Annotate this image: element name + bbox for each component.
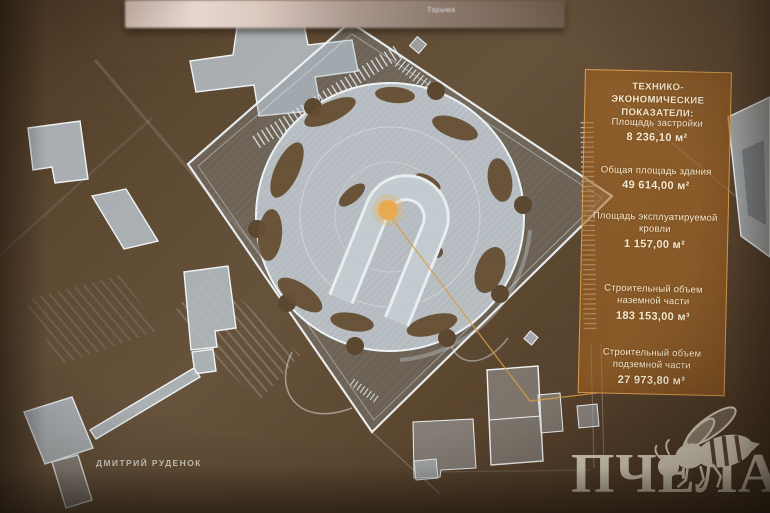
kiosk-diamond-2	[410, 37, 427, 54]
slide-top-label: Тарыма	[427, 7, 455, 14]
indicator-value: 49 614,00 м²	[591, 179, 720, 194]
indicator-value: 183 153,00 м³	[588, 309, 717, 324]
indicator-builtup-area: Площадь застройки 8 236,10 м²	[592, 116, 722, 145]
indicator-value: 1 157,00 м²	[590, 237, 719, 252]
photo-credit: ДМИТРИЙ РУДЕНОК	[96, 458, 202, 468]
indicator-label: Общая площадь здания	[592, 164, 721, 179]
indicator-total-area: Общая площадь здания 49 614,00 м²	[591, 164, 721, 193]
indicator-label: Площадь застройки	[593, 116, 722, 131]
building-bottom-small	[414, 459, 438, 480]
tep-panel: ТЕХНИКО-ЭКОНОМИЧЕСКИЕ ПОКАЗАТЕЛИ: Площад…	[578, 69, 732, 396]
indicator-label: Строительный объем наземной части	[589, 282, 719, 310]
indicator-roof-area: Площадь эксплуатируемой кровли 1 157,00 …	[590, 210, 720, 252]
l-building-west	[28, 121, 88, 183]
indicator-underground-volume: Строительный объем подземной части 27 97…	[587, 346, 717, 388]
indicator-label: Строительный объем подземной части	[587, 346, 717, 374]
projection-top-glare	[125, 0, 565, 28]
indicator-value: 27 973,80 м³	[587, 373, 716, 388]
school-building-stub	[52, 455, 92, 508]
indicator-value: 8 236,10 м²	[592, 131, 721, 146]
tep-panel-title: ТЕХНИКО-ЭКОНОМИЧЕСКИЕ ПОКАЗАТЕЛИ:	[591, 80, 725, 121]
school-building-lower	[24, 397, 93, 464]
rotated-building-west	[92, 189, 158, 249]
building-east-small	[577, 404, 599, 428]
center-marker-dot	[372, 194, 404, 226]
indicator-above-ground-volume: Строительный объем наземной части 183 15…	[588, 282, 718, 324]
hatched-zones	[25, 270, 300, 402]
projected-slide-photo: Тарыма ТЕХНИКО-ЭКОНОМИЧЕСКИЕ ПОКАЗАТЕЛИ:…	[0, 0, 770, 513]
school-corridor	[90, 368, 200, 439]
indicator-label: Площадь эксплуатируемой кровли	[590, 210, 720, 238]
kiosk-diamond-1	[524, 331, 538, 345]
